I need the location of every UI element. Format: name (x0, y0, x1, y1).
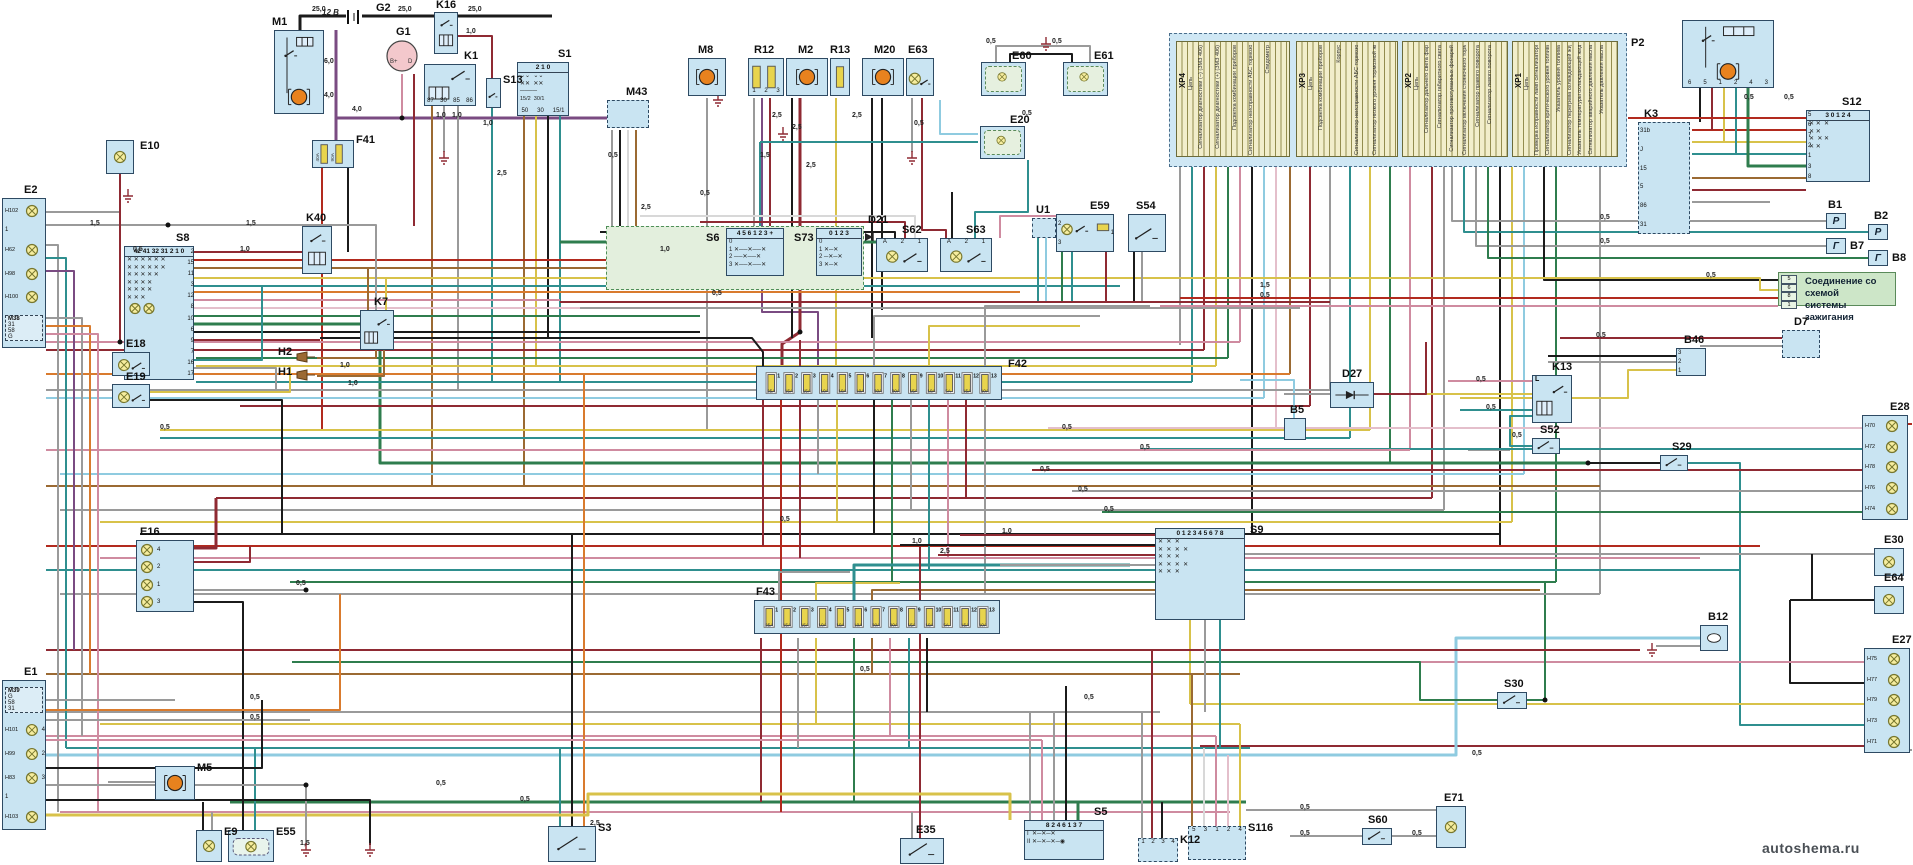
pin-labels: 651243 (1682, 80, 1774, 86)
component-K16 (434, 12, 458, 54)
pin-labels: 215113128106971617 (182, 246, 194, 380)
circuit-label: Сигнализатор низкого уровня тормозной жи… (1372, 45, 1378, 155)
lamp-row: H102 (3, 204, 45, 218)
component-label-S116: S116 (1248, 822, 1273, 834)
component-label-U1: U1 (1036, 204, 1050, 216)
lamp-icon (1875, 587, 1903, 613)
lamp-icon (197, 831, 221, 861)
pin-label: 3 (1765, 80, 1768, 86)
component-E28: H70H72H78H76H74 (1862, 415, 1908, 520)
svg-text:15A: 15A (963, 388, 972, 393)
lamp-icon (24, 747, 40, 761)
wire (816, 583, 900, 600)
wire (929, 326, 1080, 366)
lamp-icon (107, 141, 133, 173)
component-label-H1: H1 (278, 366, 292, 378)
battery-voltage-label: 12 В (322, 8, 339, 17)
pin-label: 4 (1171, 839, 1174, 845)
component-G1: B+ D (386, 40, 418, 72)
component-label-K40: K40 (306, 212, 326, 224)
component-label-S60: S60 (1368, 814, 1388, 826)
horn-icon (295, 350, 317, 364)
component-B5 (1284, 418, 1306, 440)
contact-table-row: 0 (817, 239, 861, 247)
component-U1 (1032, 218, 1056, 238)
circuit-label: Подсветка комбинации приборов (1232, 45, 1238, 130)
junction-dot (1586, 461, 1591, 466)
svg-text:20A: 20A (874, 388, 883, 393)
component-S52 (1532, 438, 1560, 454)
svg-text:10A: 10A (854, 622, 863, 627)
svg-text:25A: 25A (765, 622, 774, 627)
pin-label: 6 (182, 327, 194, 333)
component-E20 (980, 126, 1025, 159)
diode-icon (1331, 383, 1373, 407)
component-F43: 125A215A315A410A510A610A720A820A915A1010… (754, 600, 1000, 634)
motor-icon (787, 59, 827, 95)
component-label-H2: H2 (278, 346, 292, 358)
contact-table-foot: 15/2 30/1 (518, 96, 568, 102)
lamp-icon (1437, 807, 1465, 847)
svg-text:10A: 10A (925, 622, 934, 627)
wire-gauge-label: 25,0 (468, 6, 482, 13)
tag-label: L (1535, 376, 1539, 383)
wire-gauge-label: 0,5 (914, 120, 924, 127)
wire-gauge-label: 1,0 (340, 362, 350, 369)
circuit-column-label: Цепь (1188, 77, 1194, 90)
wire-gauge-label: 2,5 (806, 162, 816, 169)
component-E19 (112, 384, 150, 408)
ground-icon (123, 189, 133, 202)
wire-gauge-label: 1,5 (90, 220, 100, 227)
component-label-S8: S8 (176, 232, 189, 244)
component-G2 (344, 8, 364, 26)
component-label-M5: M5 (197, 762, 212, 774)
sensor-letter: Р (1869, 225, 1887, 239)
wire-gauge-label: 0,5 (133, 246, 143, 253)
lamp-id-label: H101 (5, 727, 22, 733)
component-label-E61: E61 (1094, 50, 1114, 62)
svg-text:5: 5 (847, 607, 850, 613)
note-pin: 6 (1781, 284, 1797, 293)
fusible-link-icon: 40A 90A (313, 141, 353, 167)
component-label-B46: B46 (1684, 334, 1704, 346)
pin-label: J (1640, 147, 1652, 153)
lamp-row: H78 (1863, 460, 1907, 474)
connector-label-XP1: XP1 (1514, 73, 1523, 88)
ground-icon (1041, 37, 1051, 50)
junction-dot (1543, 698, 1548, 703)
pin-label: 1 (752, 88, 755, 94)
pin-label: 4 (157, 547, 160, 553)
wire-gauge-label: 1,0 (452, 112, 462, 119)
svg-text:15A: 15A (783, 622, 792, 627)
component-label-S54: S54 (1136, 200, 1156, 212)
component-label-S13: S13 (503, 74, 523, 86)
contact-table-header: 0 1 2 3 (817, 229, 861, 239)
svg-text:3: 3 (813, 373, 816, 379)
lamp-icon (986, 67, 1021, 91)
pin-label: 9 (182, 338, 194, 344)
pin-label: 1 (918, 239, 921, 245)
component-B7: Г (1826, 238, 1846, 254)
pin-label: 7 (182, 349, 194, 355)
battery-icon (344, 8, 364, 26)
pin-label: 86 (466, 98, 473, 104)
component-E9 (196, 830, 222, 862)
wire-gauge-label: 1,5 (300, 840, 310, 847)
wire (1374, 342, 1426, 394)
circuit-column-label: Цепь (1414, 77, 1420, 90)
component-F41: 40A 90A (312, 140, 354, 168)
ignition-note-box: 5681Соединение со схемойсистемы зажигани… (1778, 272, 1896, 306)
pin-label: 3 (1808, 164, 1820, 170)
contact-table-header: 4 5 6 1 2 3 + (727, 229, 783, 239)
svg-text:3: 3 (811, 607, 814, 613)
lamp-id-label: H99 (5, 751, 22, 757)
sw-icon (1363, 829, 1391, 844)
wire (46, 326, 90, 674)
component-H1 (295, 368, 317, 382)
component-M43 (607, 100, 649, 128)
component-label-E16: E16 (140, 526, 160, 538)
note-line1: Соединение со схемой (1805, 276, 1891, 300)
svg-text:1: 1 (777, 373, 780, 379)
component-label-M20: M20 (874, 44, 895, 56)
pin-label: 1 (1215, 827, 1218, 833)
pin-label: 3 (1058, 240, 1070, 246)
component-label-F41: F41 (356, 134, 375, 146)
lamp-row: 2 (137, 560, 193, 574)
component-E64 (1874, 586, 1904, 614)
component-label-K3: K3 (1644, 108, 1658, 120)
component-label-E30: E30 (1884, 534, 1904, 546)
lamp-id-label: H77 (1867, 677, 1884, 683)
lamp-id-label: H102 (5, 208, 22, 214)
lamp-row: H71 (1865, 735, 1909, 749)
wire-gauge-label: 2,5 (641, 204, 651, 211)
component-label-F43: F43 (756, 586, 775, 598)
m1-icon (275, 31, 323, 113)
component-label-K7: K7 (374, 296, 388, 308)
circuit-label: Сигнализатор дальнего света фар (1424, 45, 1430, 133)
svg-text:90A: 90A (330, 152, 335, 161)
svg-text:9: 9 (918, 607, 921, 613)
component-B12 (1700, 625, 1728, 651)
wire-gauge-label: 0,5 (986, 38, 996, 45)
component-label-B1: B1 (1828, 199, 1842, 211)
lamp-icon (24, 810, 40, 824)
pin-label: 5 (1703, 80, 1706, 86)
component-label-E64: E64 (1884, 572, 1904, 584)
contact-table-row: 2 ──✕──✕ (727, 254, 783, 262)
pin-label: 10 (182, 316, 194, 322)
contact-table-row: 1 ✕─✕ (817, 247, 861, 255)
pin-label: 4 (1749, 80, 1752, 86)
lamp-icon (24, 771, 40, 785)
pin-label: 11 (182, 271, 194, 277)
wire-gauge-label: 0,5 (1052, 38, 1062, 45)
wire (1523, 582, 1545, 700)
lamp-row: H73 (1865, 714, 1909, 728)
note-pin: 8 (1781, 292, 1797, 301)
svg-text:6: 6 (866, 373, 869, 379)
lamp-row: H74 (1863, 502, 1907, 516)
pin-label: 3 (182, 282, 194, 288)
svg-text:15A: 15A (785, 388, 794, 393)
pin-label: 87 (427, 98, 434, 104)
component-label-R13: R13 (830, 44, 850, 56)
wire-gauge-label: 0,5 (780, 516, 790, 523)
lamp-row: H833 (3, 771, 45, 785)
svg-text:7: 7 (884, 373, 887, 379)
component-S13 (486, 78, 501, 108)
svg-text:10A: 10A (838, 388, 847, 393)
pin-label: 16 (182, 360, 194, 366)
lamp-icon (1884, 502, 1900, 516)
wire (922, 98, 946, 238)
svg-text:15A: 15A (801, 622, 810, 627)
wire-gauge-label: 0,5 (160, 424, 170, 431)
wire (1790, 600, 1864, 683)
ground-icon (365, 843, 375, 856)
svg-text:15A: 15A (803, 388, 812, 393)
wire (779, 572, 850, 600)
pin-labels: А21 (876, 239, 928, 245)
component-S5: 8 2 4 6 1 3 7I ✕─✕─✕II ✕─✕─✕─◉ (1024, 820, 1104, 860)
component-label-G2: G2 (376, 2, 391, 14)
component-M20 (862, 58, 904, 96)
lamp-row: H100 (3, 290, 45, 304)
pin-label: 15/1 (553, 108, 565, 114)
connector-label-XP2: XP2 (1404, 73, 1413, 88)
pin-label: 5 (1192, 827, 1195, 833)
component-label-S29: S29 (1672, 441, 1692, 453)
svg-text:5A: 5A (943, 622, 950, 627)
component-label-B5: B5 (1290, 404, 1304, 416)
svg-text:B+: B+ (390, 59, 398, 65)
pin-label: 15 (1640, 166, 1652, 172)
component-label-E28: E28 (1890, 401, 1910, 413)
lamp-id-label: H73 (1867, 718, 1884, 724)
wire-gauge-label: 0,5 (1078, 486, 1088, 493)
pin-label: 31b (1640, 128, 1652, 134)
svg-text:5: 5 (849, 373, 852, 379)
component-E1: M39G5831H1014H992H8331H103 (2, 680, 46, 830)
wire-gauge-label: 0,5 (1744, 94, 1754, 101)
wire-gauge-label: 0,5 (1596, 332, 1606, 339)
lamp-icon (1884, 440, 1900, 454)
svg-text:6: 6 (864, 607, 867, 613)
lamp-row: H103 (3, 810, 45, 824)
wire-gauge-label: 0,5 (712, 290, 722, 297)
lamp-icon (1886, 652, 1902, 666)
contact-table-row: ✕✕ ✕✕ (518, 81, 568, 89)
svg-text:20A: 20A (892, 388, 901, 393)
pin-label: 2 (1151, 839, 1154, 845)
sw-icon (487, 79, 500, 107)
wire (1812, 554, 1874, 600)
wire-gauge-label: 4,0 (324, 92, 334, 99)
svg-text:7: 7 (882, 607, 885, 613)
lamp-icon (985, 131, 1020, 154)
res1-icon (831, 59, 849, 95)
component-label-B7: B7 (1850, 240, 1864, 252)
component-label-M2: M2 (798, 44, 813, 56)
wire-gauge-label: 0,5 (1260, 292, 1270, 299)
lamp-id-label: H83 (5, 775, 22, 781)
wire-gauge-label: 0,5 (1512, 432, 1522, 439)
svg-text:15A: 15A (909, 388, 918, 393)
svg-text:9: 9 (920, 373, 923, 379)
pin-label: 2 (965, 239, 968, 245)
svg-text:12: 12 (971, 607, 977, 613)
lamp-icon (127, 302, 157, 315)
sw-icon (901, 839, 943, 863)
circuit-label: Сигнализатор противотуманных фонарей (1449, 45, 1455, 152)
svg-text:10A: 10A (818, 622, 827, 627)
circuit-label: Сигнализатор габаритного света (1437, 45, 1443, 128)
pin-label: 31 (1640, 222, 1652, 228)
sw-icon (1129, 215, 1165, 251)
svg-text:10A: 10A (979, 622, 988, 627)
sub-connector-label: M39 (8, 688, 20, 694)
note-pin: 5 (1781, 275, 1797, 284)
lamp-row: H992 (3, 747, 45, 761)
pin-label: 2 (901, 239, 904, 245)
contact-table-row: ✕ ✕ ✕ (1156, 539, 1244, 547)
component-label-K12: K12 (1180, 834, 1200, 846)
lamp-icon (1886, 735, 1902, 749)
component-S60 (1362, 828, 1392, 845)
wire-gauge-label: 0,5 (1300, 830, 1310, 837)
pin-labels: 87308586 (424, 98, 476, 104)
contact-table-row: II ✕─✕─✕─◉ (1025, 839, 1103, 847)
component-label-K1: K1 (464, 50, 478, 62)
wire-gauge-label: 0,5 (860, 666, 870, 673)
wire-gauge-label: 1,0 (660, 246, 670, 253)
pin-label: 6 (1808, 122, 1820, 128)
component-E2: H1021H62H98H100M383158G (2, 198, 46, 348)
component-label-E9: E9 (224, 826, 237, 838)
pin-label: 8 (1808, 174, 1820, 180)
component-E16: 4213 (136, 540, 194, 612)
sw-icon (1533, 439, 1559, 453)
wire (194, 602, 243, 830)
wire-gauge-label: 0,5 (1300, 804, 1310, 811)
pin-labels: А21 (940, 239, 992, 245)
sub-pin-label: 31 (8, 706, 40, 712)
wire-gauge-label: 1,0 (1002, 528, 1012, 535)
lamp-icon (24, 290, 40, 304)
svg-text:20A: 20A (872, 622, 881, 627)
connector-label-XP4: XP4 (1178, 73, 1187, 88)
svg-text:10A: 10A (981, 388, 990, 393)
wire-gauge-label: 1,5 (246, 220, 256, 227)
component-label-F42: F42 (1008, 358, 1027, 370)
wire-gauge-label: 1,5 (1260, 282, 1270, 289)
component-label-E55: E55 (276, 826, 296, 838)
pin-labels: 1234 (1138, 839, 1178, 845)
headlight-inner (985, 66, 1022, 92)
component-label-B2: B2 (1874, 210, 1888, 222)
component-label-E18: E18 (126, 338, 146, 350)
wire-gauge-label: 0,5 (296, 580, 306, 587)
wire (940, 100, 978, 134)
svg-text:4: 4 (831, 373, 834, 379)
svg-text:13: 13 (991, 373, 997, 379)
component-label-S1: S1 (558, 48, 571, 60)
wire-gauge-label: 6,0 (324, 58, 334, 65)
lamp-row: H77 (1865, 673, 1909, 687)
pin-label: 4 (42, 727, 45, 733)
ground-icon (778, 127, 788, 140)
note-line2: системы зажигания (1805, 300, 1891, 324)
component-B8: Г (1868, 250, 1888, 266)
wire (317, 350, 384, 376)
pin-label: 2 (1808, 143, 1820, 149)
wire-gauge-label: 4,0 (352, 106, 362, 113)
pin-label: 3 (1204, 827, 1207, 833)
svg-text:1: 1 (775, 607, 778, 613)
component-K40 (302, 226, 332, 274)
sw-icon (1661, 456, 1687, 470)
circuit-label: Сигнализатор неисправности АБС тормозов (1354, 45, 1360, 155)
contact-table-row: I ✕─✕─✕ (1025, 831, 1103, 839)
component-label-E2: E2 (24, 184, 37, 196)
component-B1: Р (1826, 213, 1846, 229)
lamp-icon (1068, 67, 1103, 91)
contact-table-row: ✕ ✕ ✕ (1156, 554, 1244, 562)
component-K13: L (1532, 375, 1572, 423)
pin-label: 2 (42, 751, 45, 757)
note-connector-grid: 5681 (1781, 275, 1797, 309)
oval-icon (1701, 626, 1727, 650)
pin-label: 1 (1141, 839, 1144, 845)
pin-label: 3 (776, 88, 779, 94)
contact-table-row: 0 (727, 239, 783, 247)
lamp-row: 4 (137, 543, 193, 557)
wire-gauge-label: 2,5 (497, 170, 507, 177)
fuse-row-icon: 125A215A315A410A510A610A720A820A915A1010… (755, 601, 999, 633)
connector-label-XP3: XP3 (1298, 73, 1307, 88)
contact-table-header: 2 1 0 (518, 63, 568, 73)
circuit-label: Сигнализатор левого поворота (1487, 45, 1493, 124)
component-label-E20: E20 (1010, 114, 1030, 126)
lamp-id-label: H71 (1867, 739, 1884, 745)
component-E60 (981, 62, 1026, 96)
component-S9: 0 1 2 3 4 5 6 7 8✕ ✕ ✕✕ ✕ ✕ ✕✕ ✕ ✕✕ ✕ ✕ … (1155, 528, 1245, 620)
contact-table-row: 1 ✕──✕──✕ (727, 247, 783, 255)
component-S54 (1128, 214, 1166, 252)
lamp-icon (1886, 673, 1902, 687)
lamp-icon (139, 543, 155, 557)
junction-dot (400, 116, 405, 121)
relayv-icon (435, 13, 457, 53)
component-label-D21: D21 (868, 214, 888, 226)
lamp-row: H72 (1863, 440, 1907, 454)
svg-text:8: 8 (902, 373, 905, 379)
ground-icon (439, 151, 449, 164)
lamp-icon (139, 560, 155, 574)
wire (317, 350, 376, 358)
wire (292, 662, 1497, 700)
pin-label: 12 (182, 293, 194, 299)
connector-strip-XP3 (1296, 41, 1398, 157)
component-label-S5: S5 (1094, 806, 1107, 818)
circuit-label: Сигнализатор включения стояночного тормо… (1462, 45, 1468, 155)
pin-label: А (883, 239, 887, 245)
